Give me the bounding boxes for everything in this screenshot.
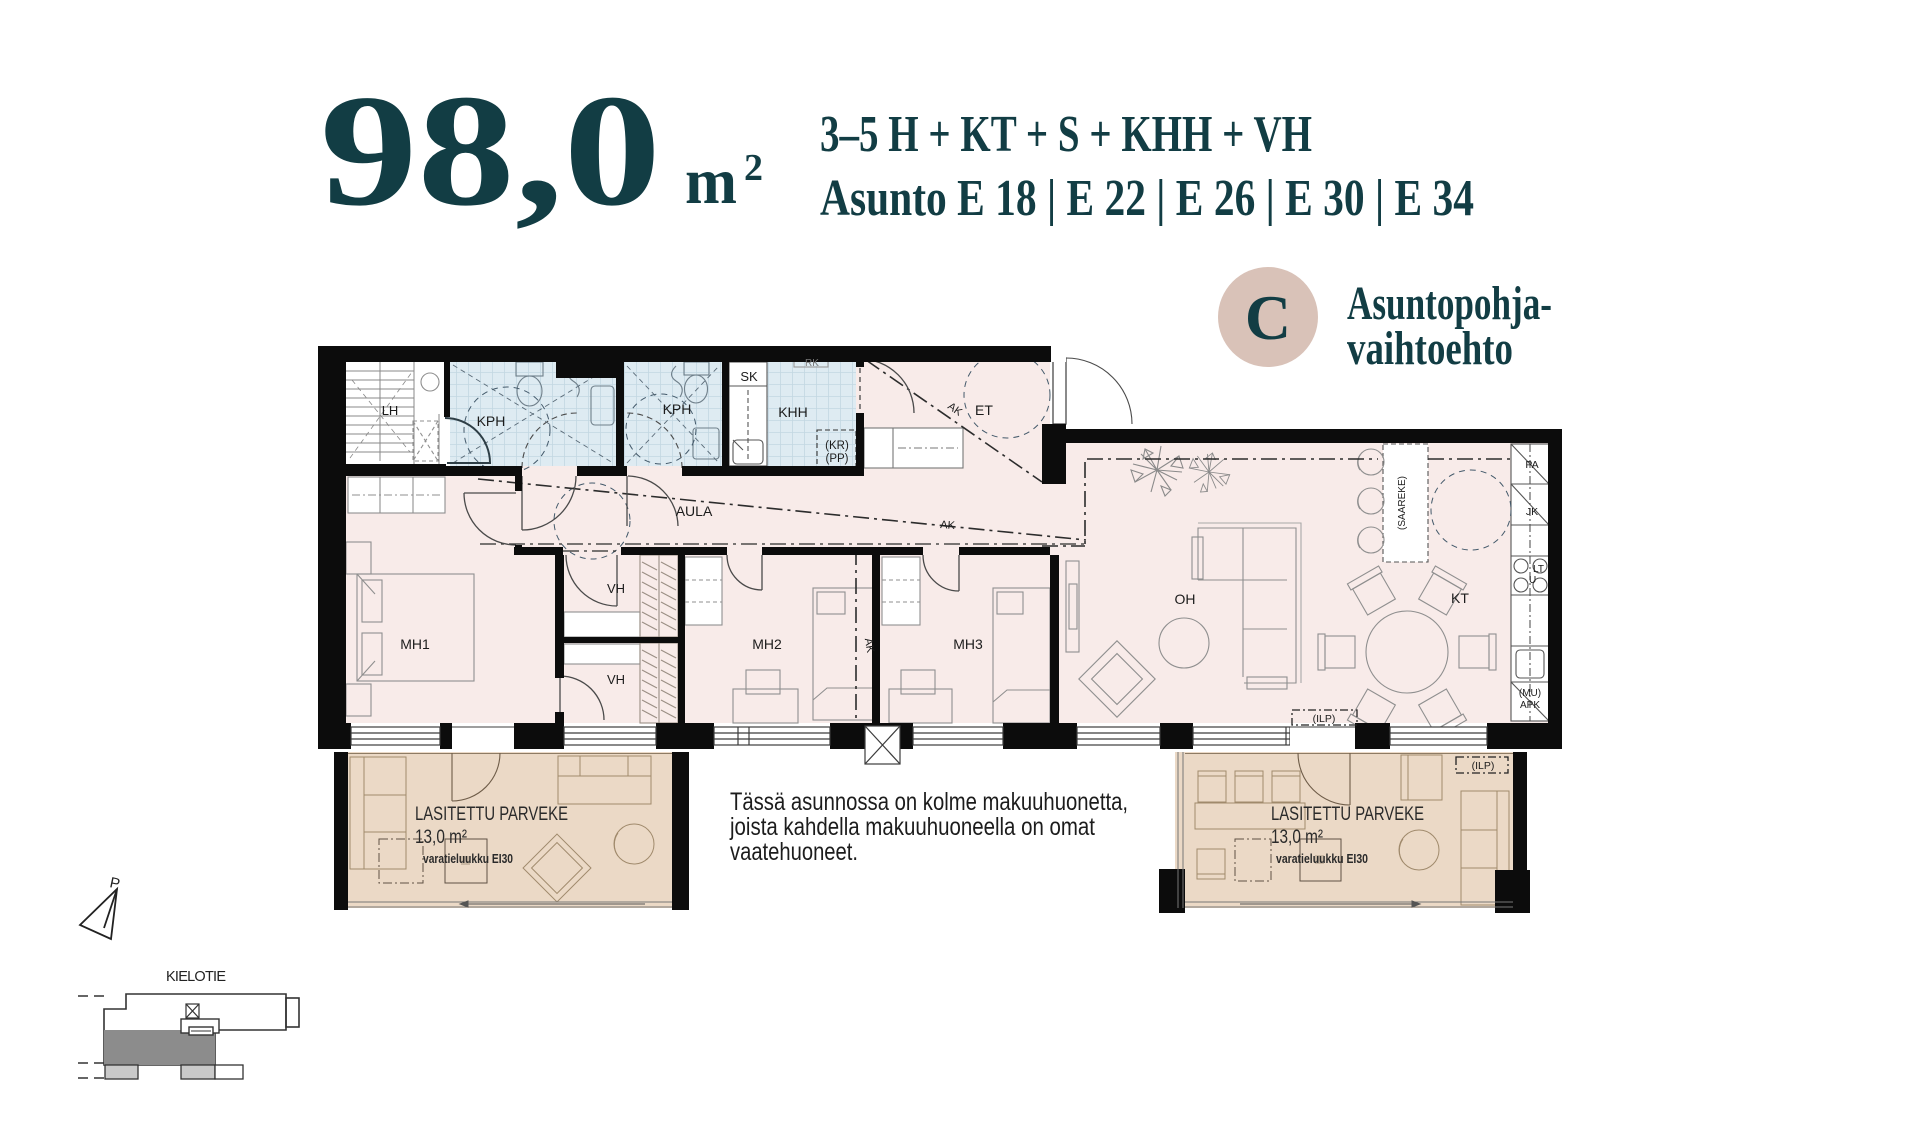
svg-text:APK: APK	[1520, 700, 1540, 711]
svg-text:MH1: MH1	[400, 636, 430, 652]
svg-text:ET: ET	[975, 402, 993, 418]
svg-text:joista kahdella makuuhuoneella: joista kahdella makuuhuoneella on omat	[729, 813, 1095, 841]
svg-text:KPH: KPH	[663, 401, 692, 417]
svg-text:(SAAREKE): (SAAREKE)	[1397, 476, 1408, 530]
svg-text:98,0: 98,0	[320, 61, 661, 239]
svg-text:2: 2	[744, 147, 763, 189]
svg-text:KIELOTIE: KIELOTIE	[166, 969, 226, 985]
svg-text:KT: KT	[1451, 590, 1469, 606]
svg-text:KHH: KHH	[778, 404, 808, 420]
svg-text:PA: PA	[1525, 459, 1538, 471]
svg-text:vaihtoehto: vaihtoehto	[1347, 322, 1513, 375]
svg-text:MH3: MH3	[953, 636, 983, 652]
svg-text:U: U	[1529, 575, 1536, 586]
svg-text:RK: RK	[805, 358, 819, 369]
svg-text:LH: LH	[382, 403, 399, 418]
svg-text:(KR): (KR)	[825, 440, 849, 452]
svg-text:m: m	[685, 145, 737, 218]
svg-text:SK: SK	[740, 369, 758, 384]
svg-text:AK: AK	[940, 519, 956, 532]
svg-text:JK: JK	[1526, 506, 1538, 518]
svg-text:vaatehuoneet.: vaatehuoneet.	[730, 838, 858, 866]
svg-text:Asunto E 18 | E 22 | E 26 | E: Asunto E 18 | E 22 | E 26 | E 30 | E 34	[820, 170, 1474, 227]
svg-text:VH: VH	[607, 581, 625, 596]
svg-text:LASITETTU PARVEKE: LASITETTU PARVEKE	[415, 804, 568, 825]
svg-text:(PP): (PP)	[826, 453, 849, 465]
svg-text:varatieluukku EI30: varatieluukku EI30	[1276, 851, 1368, 866]
svg-text:(ILP): (ILP)	[1472, 760, 1495, 772]
svg-text:OH: OH	[1175, 591, 1196, 607]
svg-text:LASITETTU PARVEKE: LASITETTU PARVEKE	[1271, 804, 1424, 825]
svg-text:C: C	[1245, 282, 1291, 353]
svg-text:AULA: AULA	[676, 503, 713, 519]
svg-text:KPH: KPH	[477, 413, 506, 429]
svg-text:MH2: MH2	[752, 636, 782, 652]
svg-text:LT: LT	[1533, 564, 1544, 575]
svg-text:(ILP): (ILP)	[1313, 713, 1336, 725]
svg-text:3–5 H + KT + S + KHH + VH: 3–5 H + KT + S + KHH + VH	[820, 106, 1312, 163]
svg-text:varatieluukku EI30: varatieluukku EI30	[423, 851, 513, 866]
svg-text:13,0 m²: 13,0 m²	[415, 827, 467, 848]
svg-text:13,0 m²: 13,0 m²	[1271, 827, 1323, 848]
svg-text:(MU): (MU)	[1519, 688, 1541, 699]
svg-text:VH: VH	[607, 672, 625, 687]
svg-text:Tässä asunnossa on kolme makuu: Tässä asunnossa on kolme makuuhuonetta,	[730, 788, 1128, 816]
